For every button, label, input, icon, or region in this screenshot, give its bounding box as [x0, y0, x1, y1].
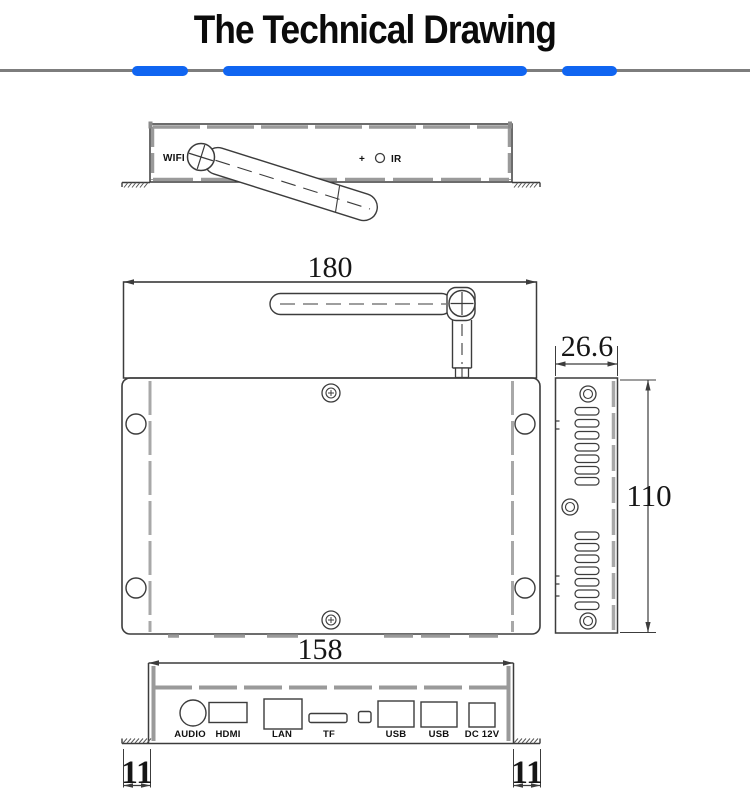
technical-drawing: WIFI + IR 180 [0, 0, 750, 799]
port-label-usb-1: USB [386, 729, 407, 740]
port-label-hdmi: HDMI [215, 729, 240, 740]
dim-180: 180 [124, 251, 537, 285]
dim-26-6-label: 26.6 [561, 330, 614, 363]
vent-slots-top [575, 408, 599, 486]
audio-jack [180, 700, 206, 726]
arrowhead [645, 622, 650, 633]
mounting-hole [515, 578, 535, 598]
dim-158: 158 [149, 633, 514, 666]
dim-180-label: 180 [308, 251, 353, 284]
ports [180, 699, 495, 729]
dim-26-6: 26.6 [556, 330, 618, 376]
usb-port-2 [421, 702, 457, 727]
port-label-audio: AUDIO [174, 729, 206, 740]
port-label-usb-2: USB [429, 729, 450, 740]
mounting-hole [126, 414, 146, 434]
mounting-holes [126, 414, 535, 598]
ir-receiver-icon [376, 154, 385, 163]
side-view: 26.6 [556, 330, 672, 633]
back-panel-view: 158 AUDIO HDMI LAN TF [121, 633, 542, 791]
dim-110-label: 110 [626, 478, 671, 513]
arrowhead [645, 380, 650, 391]
usb-port-1 [378, 701, 414, 727]
flange-left [122, 183, 150, 188]
dim-11-left: 11 [121, 749, 152, 791]
wifi-antenna-folded [270, 288, 475, 378]
dim-158-label: 158 [298, 633, 343, 666]
dim-110: 110 [620, 380, 672, 633]
lan-port [264, 699, 302, 729]
technical-drawing-page: The Technical Drawing [0, 0, 750, 799]
mounting-hole [515, 414, 535, 434]
screw-top [322, 384, 340, 402]
corner-post-left [149, 122, 153, 129]
plus-mark: + [359, 154, 365, 165]
mounting-hole [126, 578, 146, 598]
hdmi-port [209, 703, 247, 723]
front-face-view: WIFI + IR [122, 122, 540, 225]
dim-11-right: 11 [511, 749, 542, 791]
port-label-lan: LAN [272, 729, 292, 740]
reset-hole [359, 712, 372, 723]
dim-11-right-label: 11 [511, 755, 542, 791]
flange-right [512, 183, 540, 188]
side-screws [562, 386, 596, 629]
vent-slots-bottom [575, 532, 599, 610]
tf-slot [309, 714, 347, 723]
dim-11-left-label: 11 [121, 755, 152, 791]
dc-jack [469, 703, 495, 727]
port-label-dc12v: DC 12V [465, 729, 500, 740]
port-label-tf: TF [323, 729, 335, 740]
top-plan-view: 180 [122, 251, 540, 636]
corner-post-right [508, 122, 512, 129]
ir-label: IR [391, 154, 402, 165]
wifi-label: WIFI [163, 153, 185, 164]
screw-bottom [322, 611, 340, 629]
